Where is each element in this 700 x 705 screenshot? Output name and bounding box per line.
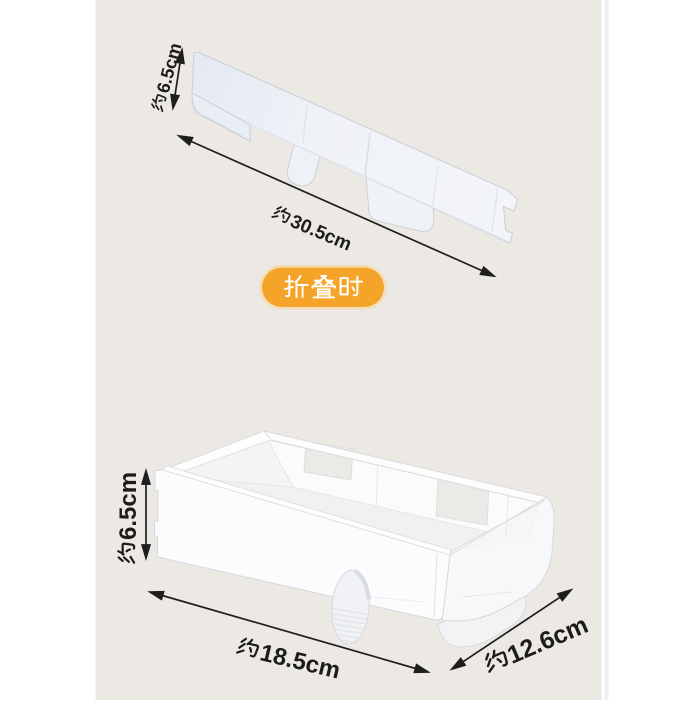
svg-text:6.5cm: 6.5cm (115, 472, 142, 540)
